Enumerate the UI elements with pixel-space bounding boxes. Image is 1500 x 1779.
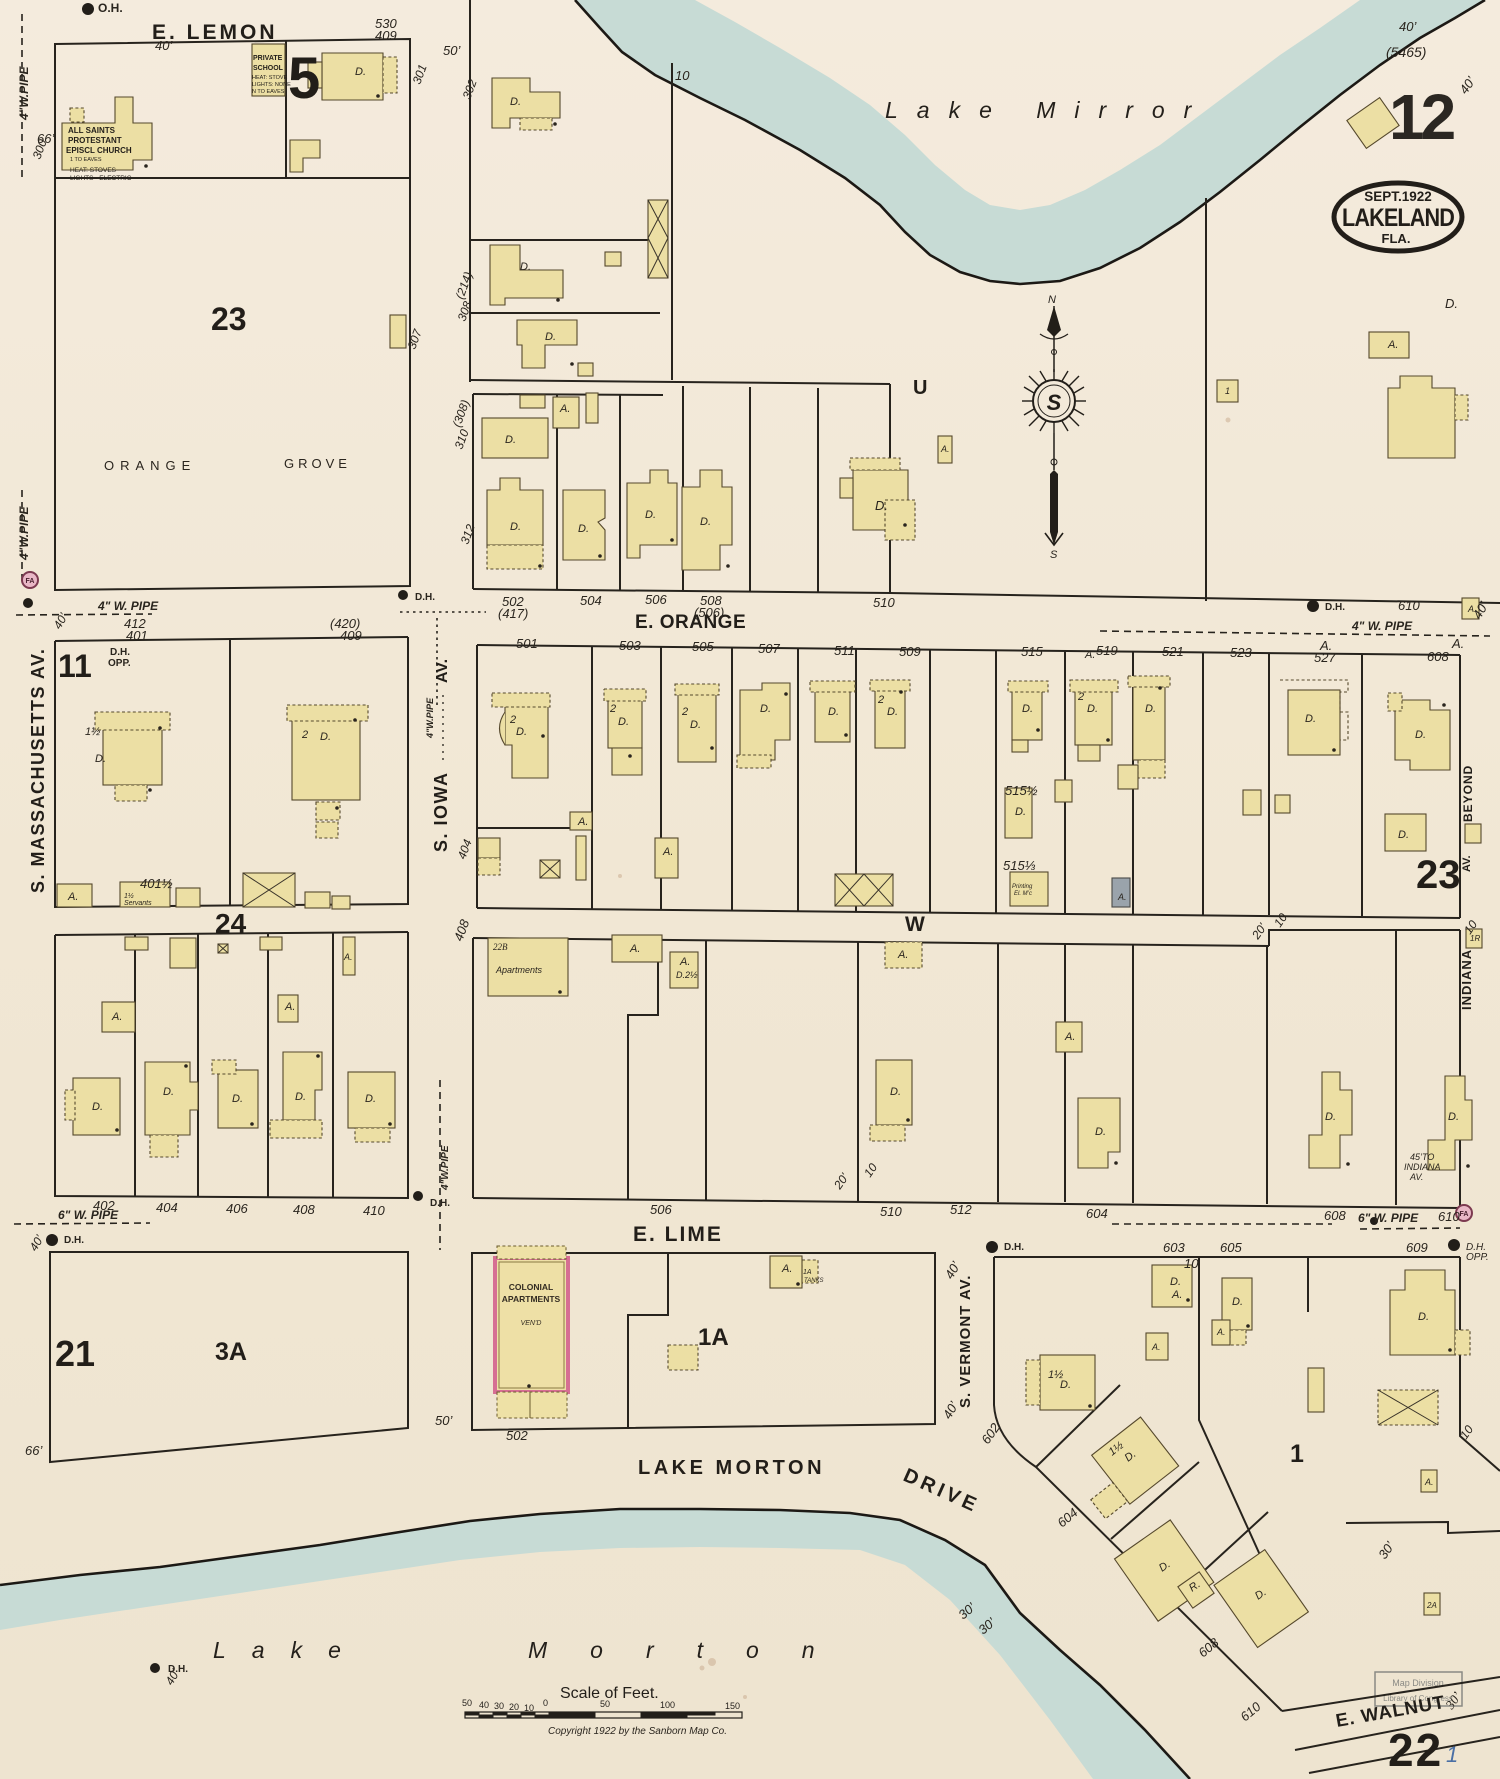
svg-text:Servants: Servants [124,900,152,907]
svg-text:Copyright 1922 by the Sanborn: Copyright 1922 by the Sanborn Map Co. [548,1726,727,1737]
svg-text:D.: D. [510,521,521,533]
svg-text:A.: A. [629,943,640,955]
svg-text:503: 503 [619,638,641,653]
svg-text:40’: 40’ [1399,19,1417,34]
svg-text:45’TO: 45’TO [1410,1152,1434,1162]
svg-text:504: 504 [580,593,602,608]
svg-text:S: S [1047,390,1062,415]
svg-text:2: 2 [1077,691,1084,703]
svg-text:U: U [913,377,927,399]
svg-text:D.: D. [1445,296,1458,311]
svg-text:A.: A. [1467,604,1477,614]
svg-text:VEN'D: VEN'D [521,1320,542,1327]
svg-text:30: 30 [494,1701,504,1711]
svg-text:HEAT: STOVE: HEAT: STOVE [252,75,288,81]
svg-text:D.: D. [163,1086,174,1098]
svg-text:515½: 515½ [1005,783,1038,798]
svg-text:1½: 1½ [1048,1369,1063,1381]
svg-text:(5465): (5465) [1386,44,1426,60]
svg-text:510: 510 [873,595,895,610]
svg-text:FA: FA [1460,1211,1469,1218]
svg-text:A.: A. [897,949,908,961]
svg-text:40: 40 [479,1700,489,1710]
svg-text:SCHOOL: SCHOOL [253,65,284,72]
svg-text:LAKE MORTON: LAKE MORTON [638,1457,825,1479]
svg-text:4" W. PIPE: 4" W. PIPE [97,599,159,613]
svg-text:N: N [1048,294,1056,306]
svg-text:D.: D. [1398,829,1409,841]
svg-text:D.: D. [828,706,839,718]
svg-text:D.: D. [95,753,106,765]
svg-text:D.: D. [760,703,771,715]
svg-text:D.: D. [578,523,589,535]
svg-text:5: 5 [288,46,320,111]
svg-text:COLONIAL: COLONIAL [509,1282,553,1292]
svg-text:2: 2 [609,703,616,715]
svg-text:E. LIME: E. LIME [633,1223,723,1246]
svg-text:523: 523 [1230,645,1252,660]
svg-text:Printing: Printing [1012,884,1033,890]
svg-text:D.: D. [505,434,516,446]
svg-text:(417): (417) [498,606,528,621]
svg-text:A.: A. [1424,1477,1434,1487]
svg-text:4"W.PIPE: 4"W.PIPE [425,697,435,739]
svg-text:OPP.: OPP. [1466,1252,1489,1263]
svg-text:A.: A. [1084,649,1095,661]
svg-text:12: 12 [1389,81,1455,153]
svg-text:50’: 50’ [435,1413,453,1428]
svg-text:INDIANA: INDIANA [1404,1162,1441,1172]
svg-text:FA: FA [26,578,35,585]
svg-text:Apartments: Apartments [495,965,543,975]
svg-text:D.: D. [890,1086,901,1098]
svg-text:505: 505 [692,639,714,654]
svg-text:401½: 401½ [140,876,173,891]
svg-text:608: 608 [1324,1208,1346,1223]
svg-text:609: 609 [1406,1240,1428,1255]
svg-text:D.: D. [645,509,656,521]
svg-text:515⅓: 515⅓ [1003,858,1036,873]
svg-text:Lake: Lake [213,1637,367,1663]
svg-text:519: 519 [1096,643,1118,658]
svg-text:D.: D. [1415,729,1426,741]
svg-text:408: 408 [293,1202,315,1217]
svg-text:D.: D. [1022,703,1033,715]
svg-text:4"W.PIPE: 4"W.PIPE [17,66,31,121]
svg-text:2: 2 [509,714,516,726]
svg-text:66’: 66’ [25,1443,43,1458]
svg-text:S. VERMONT AV.: S. VERMONT AV. [957,1275,974,1408]
svg-text:D.: D. [1448,1111,1459,1123]
svg-text:A.: A. [1216,1327,1226,1337]
svg-text:D.: D. [1015,806,1026,818]
svg-text:521: 521 [1162,644,1184,659]
svg-text:TANKS: TANKS [804,1278,824,1284]
svg-text:10: 10 [675,68,690,83]
svg-text:D.: D. [516,726,527,738]
svg-text:510: 510 [880,1204,902,1219]
svg-text:D.: D. [1418,1311,1429,1323]
svg-text:A.: A. [111,1011,122,1023]
svg-text:406: 406 [226,1201,248,1216]
svg-text:50: 50 [462,1698,472,1708]
svg-text:1R: 1R [1470,934,1480,943]
svg-text:A.: A. [1171,1289,1182,1301]
svg-text:AV.: AV. [1409,1172,1423,1182]
svg-text:APARTMENTS: APARTMENTS [502,1294,561,1304]
svg-text:D.: D. [520,261,531,273]
svg-text:AV.: AV. [1461,855,1473,872]
svg-text:2: 2 [877,694,884,706]
svg-text:GROVE: GROVE [284,456,351,471]
svg-text:A.: A. [1387,339,1398,351]
svg-text:11: 11 [58,648,92,684]
svg-text:D.: D. [92,1101,103,1113]
svg-text:512: 512 [950,1202,972,1217]
svg-text:1: 1 [1225,386,1230,396]
svg-text:24: 24 [215,908,247,939]
svg-text:A.: A. [940,444,950,454]
svg-text:6" W. PIPE: 6" W. PIPE [1358,1211,1419,1225]
svg-text:D.: D. [887,706,898,718]
svg-text:A.: A. [67,891,78,903]
svg-text:50: 50 [600,1699,610,1709]
svg-text:506: 506 [645,592,667,607]
svg-text:SEPT.1922: SEPT.1922 [1364,189,1432,204]
svg-text:1 TO EAVES: 1 TO EAVES [70,157,102,163]
svg-text:527: 527 [1314,650,1336,665]
svg-text:ORANGE: ORANGE [104,458,196,473]
svg-text:2: 2 [301,729,308,741]
svg-text:D.: D. [320,731,331,743]
svg-text:A.: A. [343,952,353,962]
svg-text:EPISCL CHURCH: EPISCL CHURCH [66,146,132,155]
svg-text:506: 506 [650,1202,672,1217]
svg-text:404: 404 [156,1200,178,1215]
svg-text:23: 23 [1416,853,1461,897]
svg-text:D.: D. [365,1093,376,1105]
svg-text:D.: D. [295,1091,306,1103]
svg-text:A.: A. [662,846,673,858]
svg-text:515: 515 [1021,644,1043,659]
svg-text:(506): (506) [694,605,724,620]
svg-text:S. IOWA: S. IOWA [431,771,451,852]
svg-text:608: 608 [1427,649,1449,664]
svg-text:W: W [905,913,925,936]
svg-text:A.: A. [1117,892,1127,902]
svg-text:OPP.: OPP. [108,658,131,669]
svg-text:PROTESTANT: PROTESTANT [68,136,122,145]
svg-text:603: 603 [1163,1240,1185,1255]
svg-text:50’: 50’ [443,43,461,58]
svg-text:1: 1 [1290,1440,1304,1468]
svg-text:605: 605 [1220,1240,1242,1255]
svg-text:D.H.: D.H. [415,592,435,603]
svg-text:Morton: Morton [528,1637,858,1663]
svg-text:D.: D. [618,716,629,728]
svg-text:22B: 22B [493,942,508,952]
svg-text:4"W.PIPE: 4"W.PIPE [440,1145,451,1191]
svg-text:D.H.: D.H. [110,647,130,658]
svg-text:D.: D. [355,66,366,78]
svg-text:1A: 1A [803,1269,812,1276]
svg-text:A.: A. [1151,1342,1161,1352]
svg-text:10: 10 [1184,1256,1199,1271]
svg-text:Lake Mirror: Lake Mirror [885,97,1210,123]
svg-text:22: 22 [1388,1724,1443,1776]
svg-text:LAKELAND: LAKELAND [1342,204,1454,232]
svg-text:AV.: AV. [434,659,451,683]
svg-text:604: 604 [1086,1206,1108,1221]
svg-text:1½: 1½ [85,726,100,738]
svg-text:D.: D. [1232,1296,1243,1308]
svg-text:A.: A. [577,816,588,828]
svg-text:409: 409 [375,28,397,43]
svg-text:D.: D. [1145,703,1156,715]
svg-text:El. M’c: El. M’c [1014,891,1032,897]
svg-text:1½: 1½ [124,892,134,900]
svg-text:N TO EAVES: N TO EAVES [252,89,285,95]
svg-text:4"W.PIPE: 4"W.PIPE [17,506,31,561]
svg-text:2A: 2A [1426,1601,1437,1610]
svg-text:610: 610 [1398,598,1420,613]
svg-text:D.: D. [690,719,701,731]
svg-text:40’: 40’ [155,38,173,53]
svg-text:D.: D. [232,1093,243,1105]
svg-text:A.: A. [284,1001,295,1013]
svg-text:4" W. PIPE: 4" W. PIPE [1351,619,1413,633]
svg-text:0: 0 [543,1698,548,1708]
svg-text:D.H.: D.H. [64,1235,84,1246]
svg-text:D.: D. [1305,713,1316,725]
svg-text:20: 20 [509,1702,519,1712]
svg-text:1A: 1A [698,1324,729,1351]
svg-text:PRIVATE: PRIVATE [253,55,283,62]
svg-text:LIGHTS - ELECTRIC: LIGHTS - ELECTRIC [70,175,132,182]
svg-text:E. ORANGE: E. ORANGE [635,612,746,633]
svg-text:507: 507 [758,641,780,656]
svg-text:D.: D. [875,498,888,513]
svg-text:2: 2 [681,706,688,718]
svg-text:1: 1 [1446,1742,1458,1767]
svg-text:A.: A. [1064,1031,1075,1043]
svg-text:100: 100 [660,1700,675,1710]
svg-text:D.: D. [700,516,711,528]
svg-text:D.H.: D.H. [1004,1242,1024,1253]
svg-text:D.: D. [1170,1276,1181,1288]
svg-text:6" W. PIPE: 6" W. PIPE [58,1208,119,1222]
svg-text:A.: A. [559,403,570,415]
svg-text:D.: D. [545,331,556,343]
svg-text:HEAT: STOVES: HEAT: STOVES [70,167,117,174]
svg-text:501: 501 [516,636,538,651]
svg-text:A.: A. [679,956,690,968]
svg-text:BEYOND: BEYOND [1461,765,1475,822]
svg-text:D.2½: D.2½ [676,970,698,980]
svg-text:511: 511 [834,643,855,658]
svg-text:S. MASSACHUSETTS AV.: S. MASSACHUSETTS AV. [28,648,48,893]
svg-text:D.: D. [1087,703,1098,715]
svg-text:LIGHTS: NONE: LIGHTS: NONE [252,82,291,88]
svg-text:D.: D. [1095,1126,1106,1138]
svg-text:INDIANA: INDIANA [1459,949,1474,1010]
svg-text:D.H.: D.H. [1325,602,1345,613]
svg-text:410: 410 [363,1203,385,1218]
svg-text:509: 509 [899,644,921,659]
svg-text:A.: A. [781,1263,792,1275]
svg-text:D.: D. [1325,1111,1336,1123]
svg-text:FLA.: FLA. [1382,231,1411,246]
svg-text:401: 401 [126,628,148,643]
svg-text:3A: 3A [215,1338,247,1366]
svg-text:O.H.: O.H. [98,1,123,15]
svg-text:409: 409 [340,628,362,643]
svg-text:23: 23 [211,301,247,337]
svg-text:150: 150 [725,1701,740,1711]
svg-text:A.: A. [1451,636,1464,651]
svg-text:D.: D. [510,96,521,108]
svg-text:S: S [1050,549,1058,561]
svg-text:ALL SAINTS: ALL SAINTS [68,126,116,135]
svg-text:502: 502 [506,1428,528,1443]
svg-text:D.H.: D.H. [430,1198,450,1209]
svg-text:610: 610 [1438,1209,1460,1224]
svg-text:21: 21 [55,1333,95,1374]
